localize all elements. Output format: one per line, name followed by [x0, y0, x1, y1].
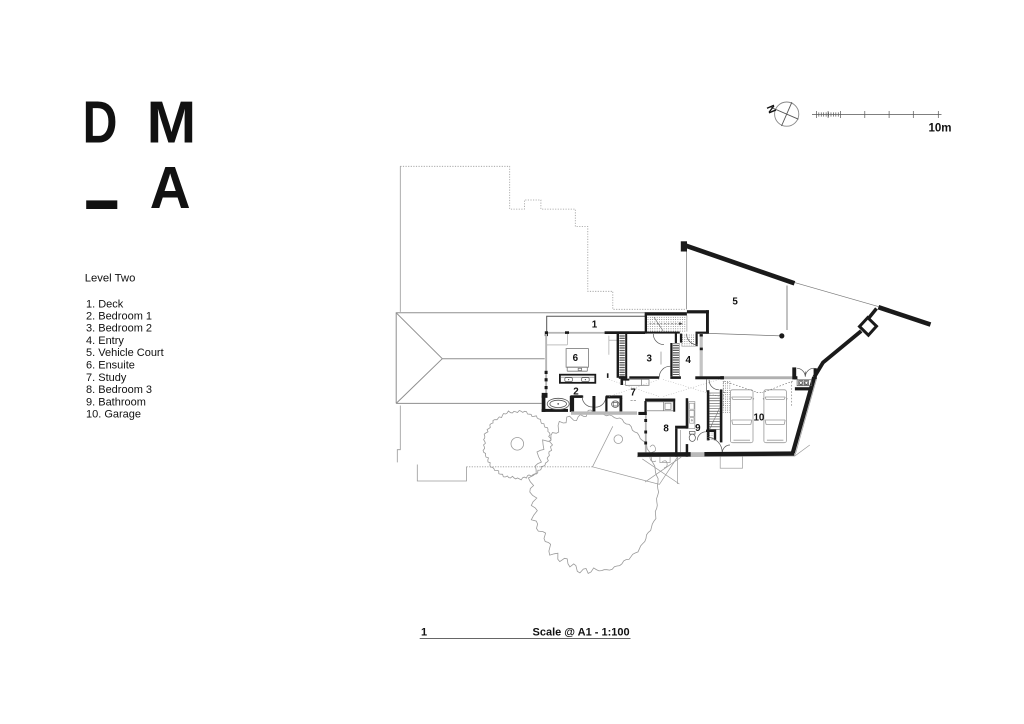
- svg-text:2: 2: [573, 386, 579, 397]
- svg-text:Scale @ A1 - 1:100: Scale @ A1 - 1:100: [533, 626, 630, 638]
- svg-text:10m: 10m: [928, 122, 951, 134]
- svg-text:7: 7: [630, 387, 636, 398]
- svg-text:8: 8: [663, 423, 669, 434]
- svg-text:7. Study: 7. Study: [86, 372, 127, 384]
- svg-text:M: M: [147, 89, 197, 156]
- svg-text:6: 6: [573, 353, 579, 364]
- svg-text:9: 9: [695, 423, 701, 434]
- svg-text:5. Vehicle Court: 5. Vehicle Court: [86, 347, 164, 359]
- svg-text:8. Bedroom 3: 8. Bedroom 3: [86, 384, 152, 396]
- svg-text:5: 5: [732, 296, 738, 307]
- svg-text:10. Garage: 10. Garage: [86, 409, 141, 421]
- svg-text:A: A: [150, 155, 191, 222]
- svg-text:3: 3: [646, 353, 652, 364]
- svg-text:9. Bathroom: 9. Bathroom: [86, 396, 146, 408]
- svg-text:2. Bedroom 1: 2. Bedroom 1: [86, 310, 152, 322]
- svg-text:1: 1: [421, 626, 427, 638]
- svg-text:Level Two: Level Two: [85, 272, 136, 284]
- svg-text:6. Ensuite: 6. Ensuite: [86, 360, 135, 372]
- svg-text:10: 10: [753, 412, 764, 423]
- svg-text:N: N: [765, 103, 779, 115]
- svg-text:4. Entry: 4. Entry: [86, 335, 124, 347]
- svg-text:4: 4: [685, 355, 691, 366]
- svg-text:3. Bedroom 2: 3. Bedroom 2: [86, 323, 152, 335]
- svg-text:1. Deck: 1. Deck: [86, 298, 124, 310]
- svg-text:D: D: [83, 90, 118, 156]
- svg-text:1: 1: [592, 320, 598, 331]
